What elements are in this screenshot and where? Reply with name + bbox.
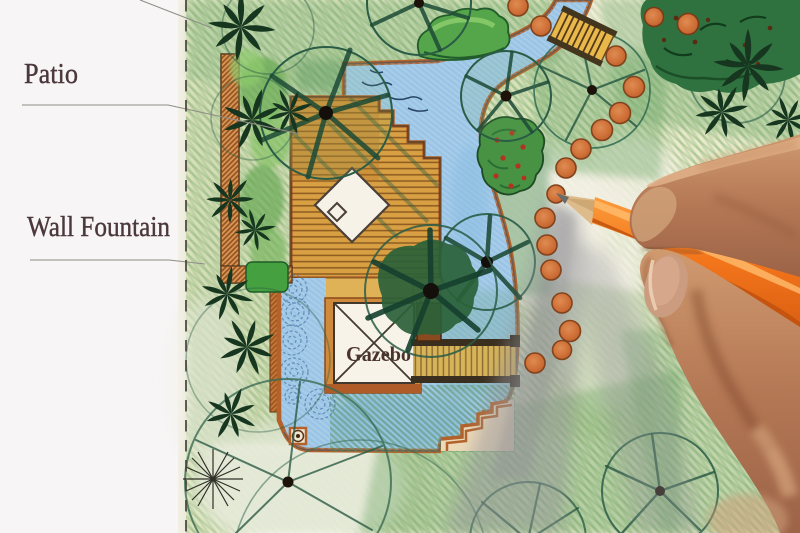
svg-text:Wall Fountain: Wall Fountain <box>27 211 170 243</box>
svg-text:Gazebo: Gazebo <box>346 342 411 366</box>
svg-text:Patio: Patio <box>24 58 78 90</box>
